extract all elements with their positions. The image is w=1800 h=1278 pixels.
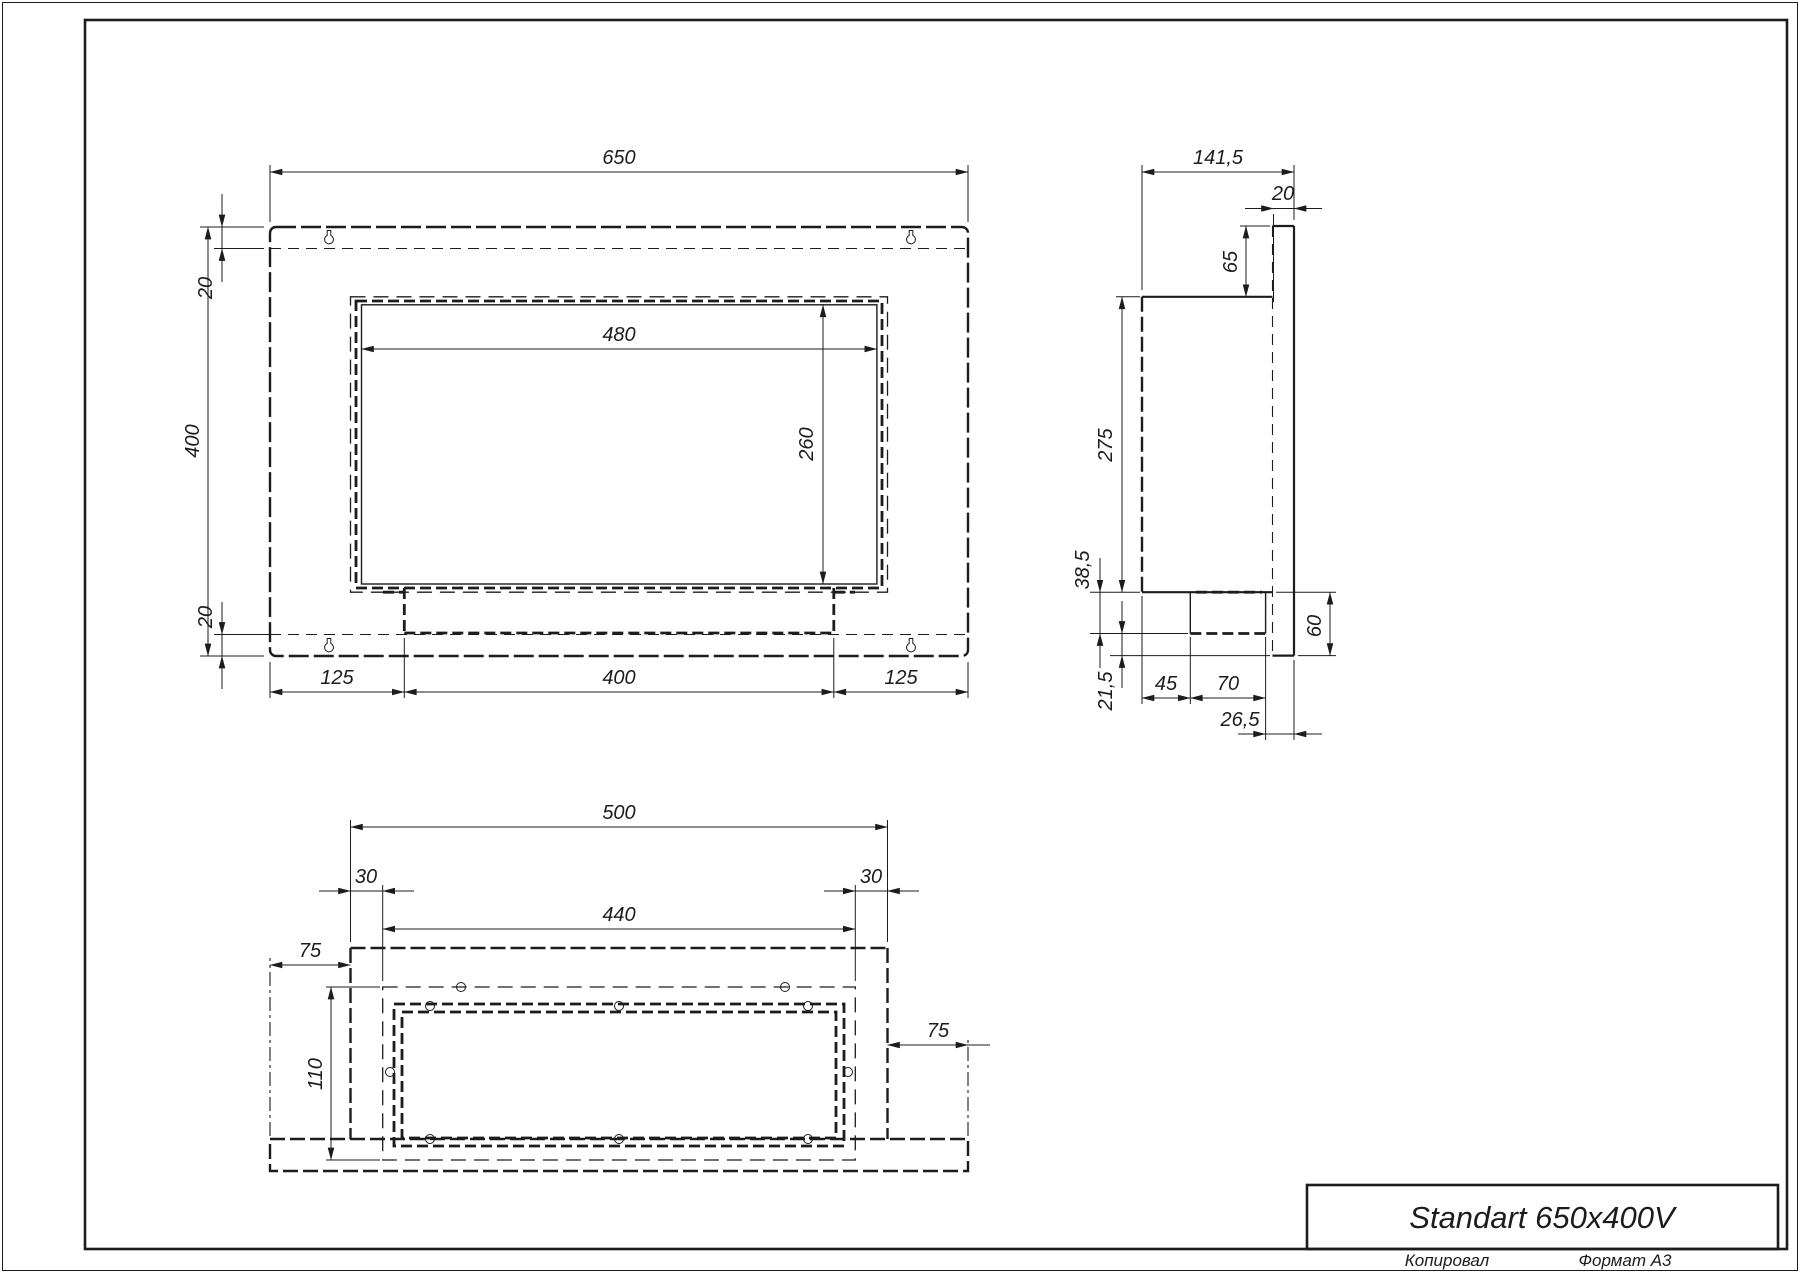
bottom-burner-inner-hidden — [402, 1012, 836, 1138]
dim-label-21-5: 21,5 — [1095, 671, 1117, 712]
front-view — [270, 227, 968, 656]
dim-label-26-5: 26,5 — [1220, 709, 1261, 731]
dim-label-650: 650 — [602, 147, 635, 169]
bottom-burner-outer-hidden — [394, 1004, 844, 1146]
dim-label-275: 275 — [1095, 427, 1117, 462]
dim-label-480: 480 — [602, 324, 635, 346]
dim-label-20-top: 20 — [195, 277, 217, 300]
dim-label-60: 60 — [1304, 615, 1326, 637]
title-block: Standart 650x400V Копировал Формат А3 — [1307, 1185, 1778, 1270]
dim-label-30-right: 30 — [860, 866, 882, 888]
bottom-view-dimensions: 500 30 30 440 75 110 75 — [270, 802, 990, 1160]
drawing-title: Standart 650x400V — [1409, 1200, 1678, 1235]
keyhole-mount-icon — [907, 639, 916, 652]
format-label: Формат А3 — [1578, 1251, 1672, 1270]
copied-by-label: Копировал — [1405, 1251, 1490, 1270]
sheet-outer-border — [3, 3, 1798, 1271]
dim-label-38-5: 38,5 — [1072, 550, 1094, 590]
dim-label-70: 70 — [1217, 673, 1239, 695]
front-view-dimensions: 650 400 20 20 480 260 125 400 125 — [182, 147, 968, 698]
screw-hole — [386, 1068, 395, 1077]
dim-label-500: 500 — [602, 802, 635, 824]
dim-label-125-left: 125 — [320, 667, 354, 689]
dim-label-260: 260 — [796, 427, 818, 461]
side-view — [1142, 226, 1294, 656]
bottom-view — [270, 948, 968, 1171]
dim-label-110: 110 — [305, 1058, 327, 1090]
dim-label-45: 45 — [1155, 673, 1178, 695]
dim-label-141-5: 141,5 — [1193, 147, 1244, 169]
side-view-dimensions: 141,5 20 65 275 38,5 21,5 60 — [1072, 147, 1336, 740]
dim-label-440: 440 — [602, 904, 635, 926]
dim-label-75-right: 75 — [927, 1020, 950, 1042]
drawing-sheet: 650 400 20 20 480 260 125 400 125 — [0, 0, 1800, 1273]
dim-label-400: 400 — [182, 424, 204, 457]
technical-drawing: 650 400 20 20 480 260 125 400 125 — [0, 0, 1800, 1273]
dim-label-20-depth: 20 — [1271, 183, 1294, 205]
dim-label-75-left: 75 — [299, 940, 322, 962]
screw-hole — [804, 1002, 813, 1011]
dim-label-20-bottom: 20 — [195, 606, 217, 629]
keyhole-mount-icon — [325, 639, 334, 652]
keyhole-mount-icon — [907, 231, 916, 244]
dim-label-125-right: 125 — [884, 667, 918, 689]
keyhole-mount-icon — [325, 231, 334, 244]
dim-label-65: 65 — [1220, 250, 1242, 273]
dim-label-30-left: 30 — [355, 866, 377, 888]
dim-label-400-burner: 400 — [602, 667, 635, 689]
